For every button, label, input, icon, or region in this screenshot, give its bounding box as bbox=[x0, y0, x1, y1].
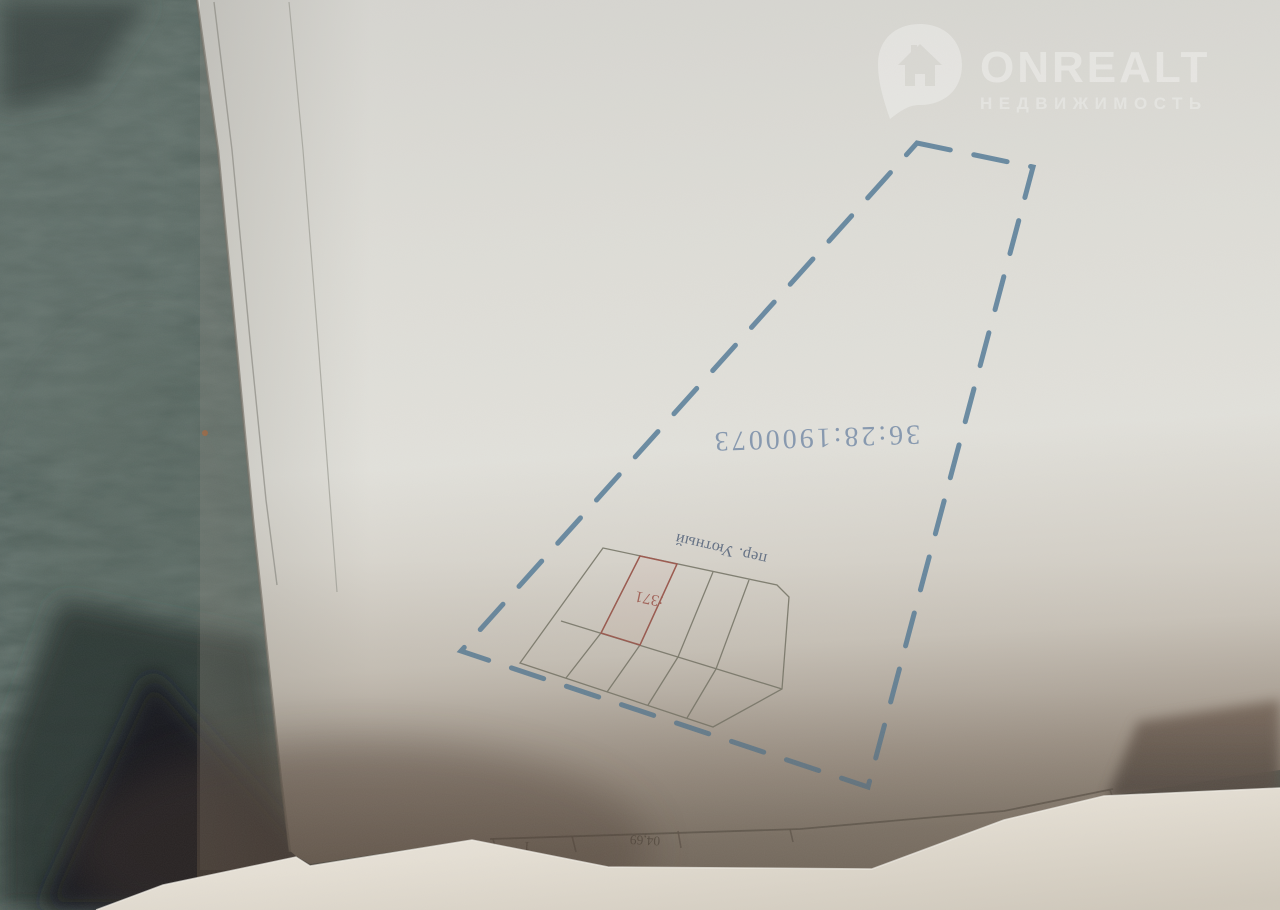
photo-of-cadastral-plan: :371 пер. Уютный 36:28:1900073 1 04,69 O… bbox=[0, 0, 1280, 910]
photo-grain-overlay bbox=[0, 0, 1280, 910]
photo-canvas: :371 пер. Уютный 36:28:1900073 1 04,69 O… bbox=[0, 0, 1280, 910]
